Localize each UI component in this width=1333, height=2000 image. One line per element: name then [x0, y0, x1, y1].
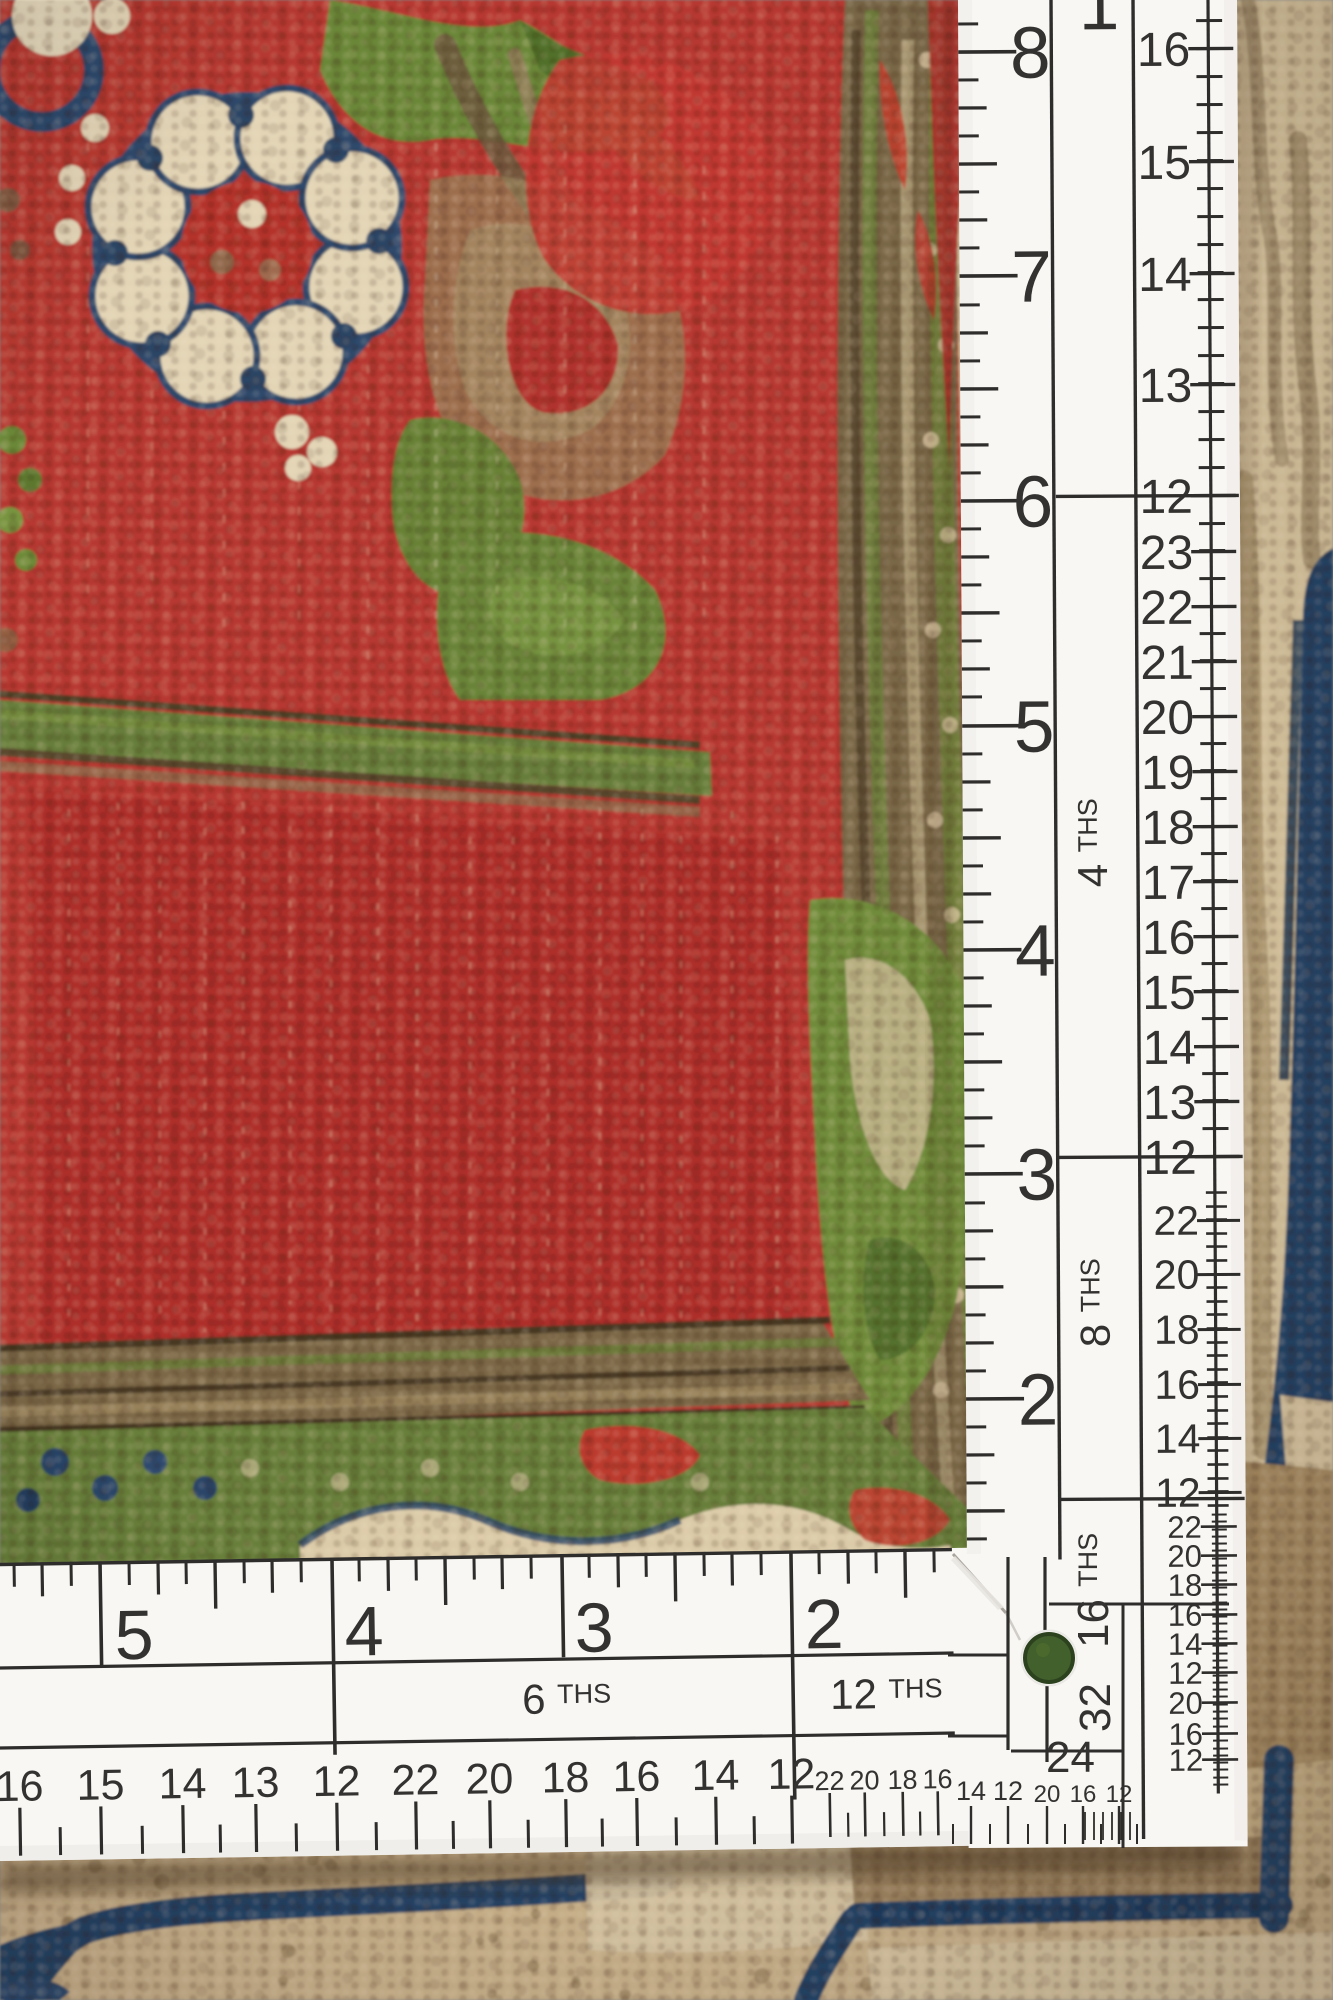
svg-text:16: 16	[1154, 1362, 1200, 1408]
svg-text:14: 14	[956, 1776, 986, 1806]
svg-text:20: 20	[465, 1755, 514, 1804]
svg-text:21: 21	[1140, 637, 1194, 690]
svg-text:13: 13	[231, 1759, 280, 1808]
svg-text:13: 13	[1139, 360, 1193, 413]
svg-text:22: 22	[1153, 1198, 1199, 1244]
svg-text:20: 20	[1034, 1781, 1061, 1808]
svg-text:18: 18	[1154, 1307, 1200, 1353]
svg-text:19: 19	[1141, 747, 1195, 800]
svg-text:4: 4	[1015, 910, 1056, 991]
svg-text:14: 14	[158, 1760, 207, 1809]
svg-text:32: 32	[1071, 1683, 1120, 1732]
svg-text:20: 20	[1154, 1252, 1200, 1298]
svg-text:18: 18	[1141, 802, 1195, 855]
svg-text:3: 3	[574, 1588, 614, 1667]
svg-text:22: 22	[814, 1766, 845, 1796]
svg-text:24: 24	[1046, 1733, 1095, 1782]
svg-text:17: 17	[1142, 857, 1196, 910]
svg-text:12: 12	[312, 1757, 361, 1806]
svg-text:5: 5	[114, 1596, 154, 1675]
svg-text:20: 20	[1141, 692, 1195, 745]
svg-text:14: 14	[1138, 249, 1192, 302]
svg-text:4: 4	[344, 1592, 384, 1671]
svg-text:3: 3	[1016, 1134, 1057, 1215]
svg-text:20: 20	[1168, 1686, 1203, 1721]
svg-text:8: 8	[1010, 12, 1051, 93]
svg-text:16: 16	[0, 1762, 44, 1811]
svg-text:12: 12	[993, 1776, 1023, 1806]
svg-text:22: 22	[1140, 582, 1194, 635]
svg-text:13: 13	[1143, 1077, 1197, 1130]
svg-text:5: 5	[1014, 686, 1055, 767]
svg-text:12: 12	[1106, 1781, 1133, 1808]
svg-text:2: 2	[1018, 1359, 1059, 1440]
svg-text:16: 16	[922, 1764, 953, 1794]
svg-text:1: 1	[1078, 0, 1119, 45]
svg-text:7: 7	[1011, 236, 1052, 317]
svg-text:20: 20	[849, 1765, 880, 1795]
svg-text:18: 18	[887, 1765, 918, 1795]
svg-text:16: 16	[1137, 24, 1191, 77]
svg-text:18: 18	[541, 1754, 590, 1803]
svg-text:16: 16	[612, 1753, 661, 1802]
svg-text:15: 15	[1137, 137, 1191, 190]
svg-text:16: 16	[1070, 1781, 1097, 1808]
svg-text:6: 6	[1012, 461, 1053, 542]
svg-text:15: 15	[1142, 967, 1196, 1020]
svg-text:22: 22	[391, 1756, 440, 1805]
svg-text:15: 15	[76, 1761, 125, 1810]
svg-text:2: 2	[804, 1585, 844, 1664]
svg-text:14: 14	[691, 1751, 740, 1800]
svg-text:12: 12	[1169, 1743, 1204, 1778]
svg-text:14: 14	[1155, 1416, 1201, 1462]
svg-text:23: 23	[1140, 527, 1194, 580]
svg-text:16: 16	[1142, 912, 1196, 965]
svg-text:12: 12	[767, 1750, 816, 1799]
svg-text:14: 14	[1142, 1022, 1196, 1075]
